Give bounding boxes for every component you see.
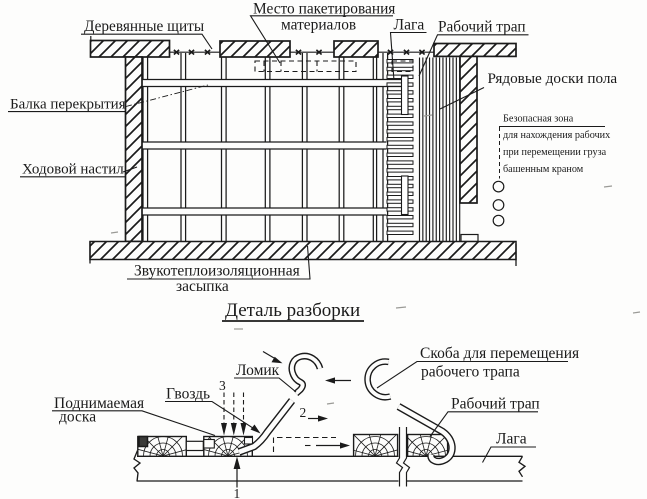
svg-text:Рабочий трап: Рабочий трап — [438, 19, 526, 36]
svg-text:Безопасная зона: Безопасная зона — [503, 114, 574, 125]
svg-text:3: 3 — [219, 378, 226, 393]
svg-text:Лага: Лага — [394, 17, 425, 34]
svg-text:Ходовой настил: Ходовой настил — [22, 162, 124, 178]
svg-text:засыпка: засыпка — [176, 278, 229, 295]
svg-text:2: 2 — [300, 405, 307, 420]
svg-text:башенным краном: башенным краном — [503, 164, 584, 175]
svg-text:Деревянные щиты: Деревянные щиты — [84, 18, 204, 35]
svg-text:Звукотеплоизоляционная: Звукотеплоизоляционная — [134, 263, 300, 280]
svg-text:для нахождения рабочих: для нахождения рабочих — [503, 130, 610, 141]
svg-text:Лага: Лага — [496, 431, 527, 448]
svg-text:1: 1 — [234, 486, 241, 499]
svg-text:Деталь разборки: Деталь разборки — [225, 300, 360, 321]
svg-text:рабочего трапа: рабочего трапа — [421, 364, 520, 381]
svg-text:материалов: материалов — [281, 17, 356, 34]
svg-text:Место пакетирования: Место пакетирования — [253, 1, 395, 18]
svg-text:Ломик: Ломик — [236, 362, 280, 379]
svg-text:Скоба для перемещения: Скоба для перемещения — [420, 345, 579, 362]
svg-text:при перемещении груза: при перемещении груза — [503, 147, 607, 158]
svg-text:Рядовые доски пола: Рядовые доски пола — [488, 70, 618, 87]
svg-text:Балка перекрытия: Балка перекрытия — [10, 97, 126, 113]
svg-text:Гвоздь: Гвоздь — [166, 386, 210, 403]
svg-text:Рабочий трап: Рабочий трап — [451, 396, 540, 413]
